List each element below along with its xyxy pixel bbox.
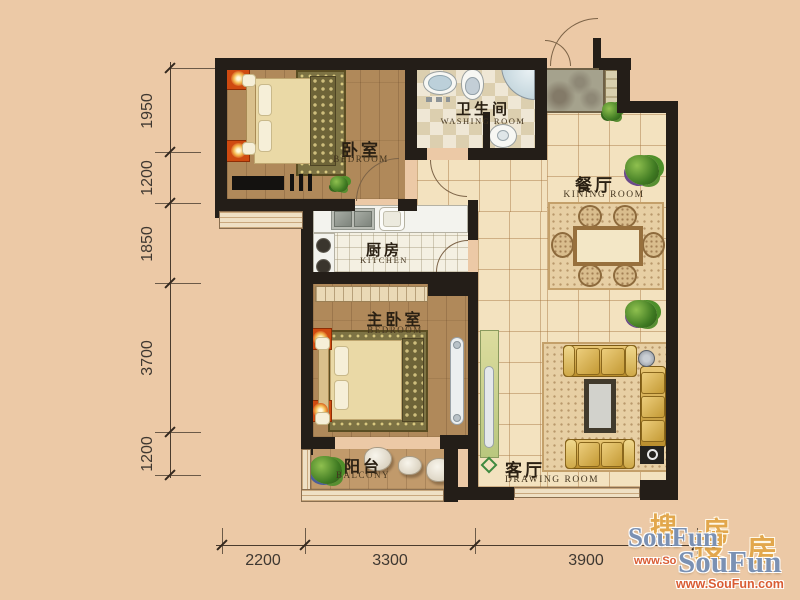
floor-plan: 卧室 BEDROOM 卫生间 WASHING ROOM 餐厅 KINING RO… (0, 0, 800, 600)
dim-bottom-1: 2200 (238, 552, 288, 570)
bedroom1-label-en: BEDROOM (311, 154, 411, 164)
wall-right (666, 101, 678, 500)
dim-ext-left-3 (155, 203, 201, 204)
master-wardrobe (315, 286, 428, 302)
living-sofa-bottom-arm-right (623, 439, 635, 469)
master-label-en: BEDROOM (345, 325, 445, 335)
wall-kitchen-left (301, 199, 313, 455)
living-label-en: DRAWING ROOM (492, 475, 612, 485)
wall-kitchen-right-top (468, 200, 478, 240)
dim-left-3: 1850 (139, 224, 157, 264)
bedroom1-plant (330, 176, 348, 192)
living-bottom-window (514, 487, 640, 498)
master-headboard-post-top (315, 337, 330, 350)
dining-chair-left (551, 232, 574, 258)
master-pillow-1 (334, 346, 349, 376)
master-sliding-door-knob-bottom (453, 414, 461, 422)
dim-left-2: 1200 (139, 158, 157, 198)
wall-bedroom1-bottom-stub (398, 199, 417, 211)
wall-bathroom-left (405, 58, 417, 160)
dim-ext-left-6 (155, 475, 201, 476)
living-sofa-top-arm-right (625, 345, 637, 377)
flower-niche-window (219, 211, 303, 229)
wall-living-bottom (444, 487, 514, 500)
hall-glass-screen-handle (484, 366, 494, 448)
dim-left-1: 1950 (139, 91, 157, 131)
bedroom1-headboard (246, 84, 256, 146)
living-sofa-bottom-cushion-1 (578, 442, 600, 467)
kitchen-burner-1 (316, 238, 331, 253)
balcony-bottom-window (301, 489, 444, 502)
balcony-label-en: BALCONY (323, 470, 403, 480)
bedroom1-pillow-1 (258, 84, 272, 116)
watermark2-brand: SouFun (678, 544, 781, 580)
master-sliding-door-knob-top (453, 341, 461, 349)
living-sofa-bottom-cushion-2 (601, 442, 623, 467)
dining-label-en: KINING ROOM (554, 190, 654, 200)
dining-chair-bottom-2 (613, 264, 637, 287)
living-sofa-top-cushion-2 (601, 348, 625, 375)
dim-left-4: 3700 (139, 338, 157, 378)
master-sliding-door (450, 337, 464, 425)
dining-chair-top-1 (578, 205, 602, 228)
dim-left-5: 1200 (139, 434, 157, 474)
dining-chair-top-2 (613, 205, 637, 228)
wall-bedroom1-bottom (215, 199, 355, 211)
master-headboard-post-bottom (315, 412, 330, 425)
master-bed-foot-pattern (402, 338, 424, 422)
living-plant (625, 300, 657, 328)
wall-master-balcony-right (440, 435, 478, 449)
living-sofa-top-arm-left (563, 345, 575, 377)
dining-chair-right (642, 232, 665, 258)
kitchen-prep-sink-bowl (383, 211, 401, 227)
dim-bottom-2: 3300 (365, 552, 415, 570)
wall-master-right (468, 272, 478, 500)
wall-left (215, 58, 227, 218)
watermark1-url: www.So (634, 555, 676, 567)
wall-bathroom-bottom-right (468, 148, 547, 160)
bathroom-basin-bowl (497, 130, 509, 141)
bedroom1-tv-bench (232, 176, 284, 190)
dining-table (573, 226, 643, 266)
dining-chair-bottom-1 (578, 264, 602, 287)
wall-top (215, 58, 545, 70)
living-sofa-top-cushion-1 (576, 348, 600, 375)
bedroom1-headboard-post-bottom (242, 142, 256, 155)
living-side-table (638, 350, 655, 367)
wall-corner-bottom-right (640, 480, 678, 500)
entry-door-mat (543, 68, 605, 113)
wall-master-balcony-left (301, 437, 335, 449)
wall-bathroom-right (535, 58, 547, 160)
bathroom-toilet-bowl (465, 77, 480, 95)
bedroom1-pillow-2 (258, 120, 272, 152)
living-av-unit-dial (647, 449, 658, 460)
bedroom1-headboard-post-top (242, 74, 256, 87)
watermark2-url: www.SouFun.com (676, 577, 784, 591)
dim-bottom-3: 3900 (561, 552, 611, 570)
master-pillow-2 (334, 380, 349, 410)
dim-ext-left-1 (170, 68, 216, 69)
living-sofa-right-cushion-1 (641, 372, 665, 394)
living-sofa-right-cushion-2 (641, 396, 665, 418)
kitchen-sink-bowl-1 (334, 211, 352, 227)
bedroom1-tv-stand (290, 174, 312, 191)
living-coffee-table (584, 379, 616, 433)
dim-ext-left-2 (155, 152, 201, 153)
living-sofa-right-cushion-3 (641, 420, 665, 442)
wall-kitchen-bottom (301, 272, 478, 284)
bathroom-label-en: WASHING ROOM (433, 116, 533, 126)
living-sofa-bottom-arm-left (565, 439, 577, 469)
bathroom-sink-basin (428, 75, 452, 91)
kitchen-sink-bowl-2 (354, 211, 372, 227)
kitchen-label-en: KITCHEN (344, 255, 424, 265)
dim-ext-left-4 (155, 283, 201, 284)
dimension-line-left (170, 62, 171, 478)
dim-ext-left-5 (155, 432, 201, 433)
